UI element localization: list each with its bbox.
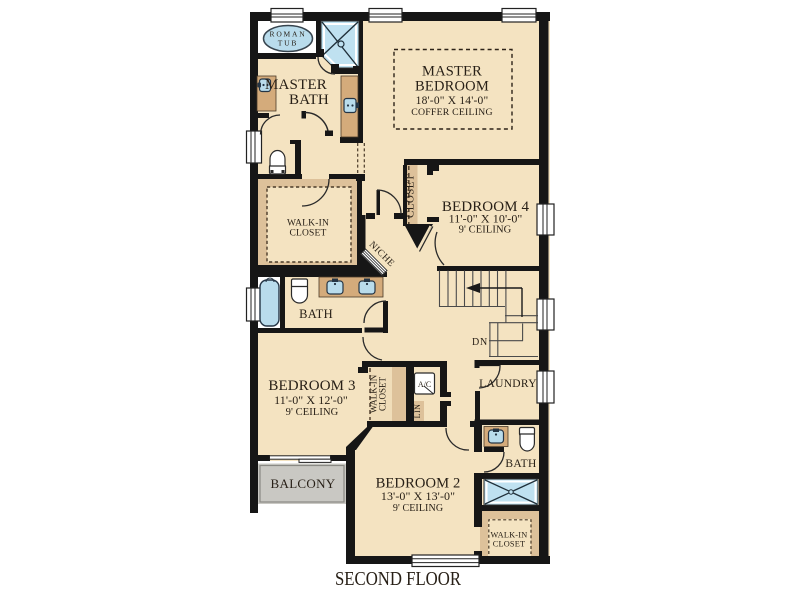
svg-text:11'-0" X 12'-0": 11'-0" X 12'-0" xyxy=(274,393,348,407)
svg-text:WALK-IN: WALK-IN xyxy=(287,219,329,229)
svg-text:11'-0" X 10'-0": 11'-0" X 10'-0" xyxy=(449,212,523,226)
svg-text:CLOSET: CLOSET xyxy=(289,229,326,239)
svg-text:COFFER CEILING: COFFER CEILING xyxy=(411,107,492,118)
svg-text:9' CEILING: 9' CEILING xyxy=(286,407,339,418)
svg-text:9' CEILING: 9' CEILING xyxy=(459,225,512,236)
svg-text:ROMAN: ROMAN xyxy=(270,30,307,39)
svg-text:LIN: LIN xyxy=(413,404,422,419)
svg-text:LAUNDRY: LAUNDRY xyxy=(479,378,537,390)
svg-text:CLOSET: CLOSET xyxy=(405,174,417,218)
svg-text:SECOND FLOOR: SECOND FLOOR xyxy=(335,569,461,590)
svg-text:BATH: BATH xyxy=(505,458,536,470)
svg-text:BEDROOM: BEDROOM xyxy=(415,79,489,95)
svg-text:13'-0" X 13'-0": 13'-0" X 13'-0" xyxy=(381,489,455,503)
svg-text:CLOSET: CLOSET xyxy=(493,540,526,549)
svg-text:CLOSET: CLOSET xyxy=(378,377,388,412)
svg-text:MASTER: MASTER xyxy=(422,64,482,80)
svg-text:BEDROOM 3: BEDROOM 3 xyxy=(268,378,355,394)
svg-text:WALK-IN: WALK-IN xyxy=(491,531,528,540)
svg-text:A/C: A/C xyxy=(418,380,431,389)
svg-text:9' CEILING: 9' CEILING xyxy=(393,503,443,514)
svg-text:18'-0" X 14'-0": 18'-0" X 14'-0" xyxy=(416,95,489,107)
svg-text:DN: DN xyxy=(472,337,488,348)
svg-text:BALCONY: BALCONY xyxy=(271,476,336,491)
svg-text:BATH: BATH xyxy=(299,307,333,321)
svg-text:BATH: BATH xyxy=(289,92,329,108)
svg-text:TUB: TUB xyxy=(278,39,298,48)
svg-text:MASTER: MASTER xyxy=(265,77,327,93)
